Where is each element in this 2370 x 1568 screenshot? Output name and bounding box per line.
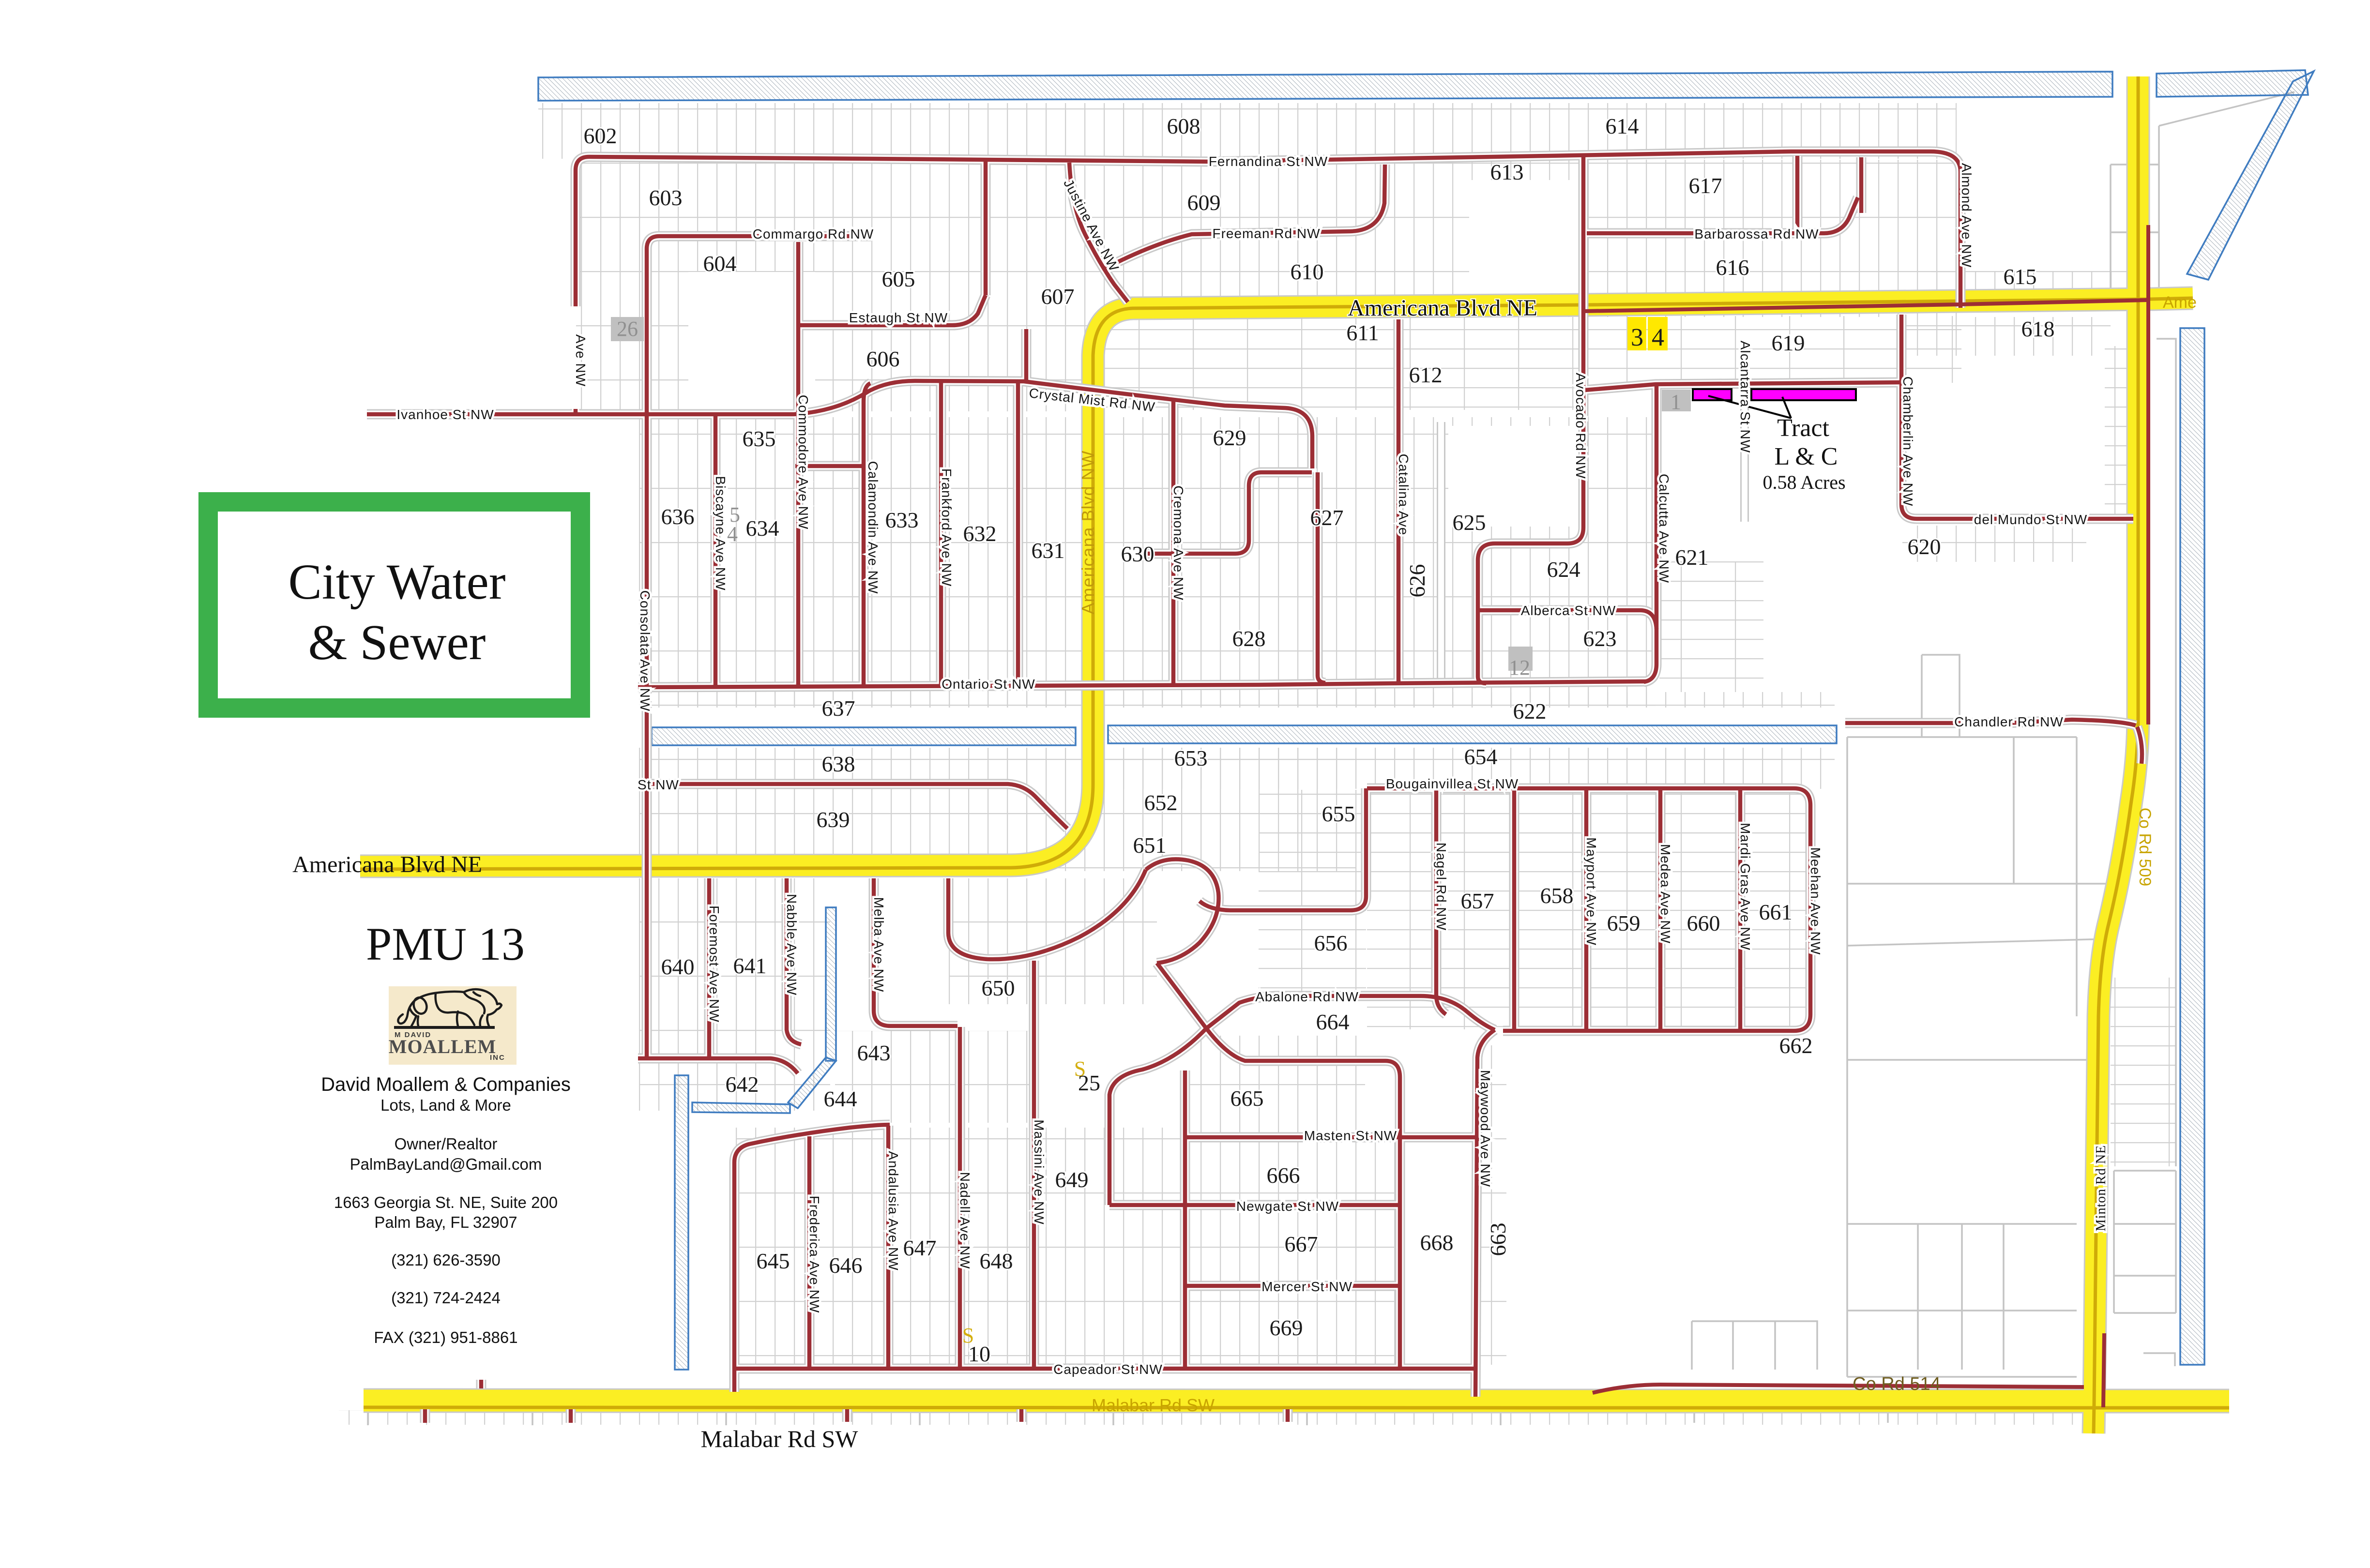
svg-text:655: 655 [1322, 801, 1355, 826]
svg-text:Ivanhoe St NW: Ivanhoe St NW [396, 407, 494, 422]
svg-text:605: 605 [882, 267, 915, 291]
svg-text:(321) 626-3590: (321) 626-3590 [391, 1251, 501, 1269]
svg-text:Frankford Ave NW: Frankford Ave NW [939, 468, 954, 587]
svg-text:617: 617 [1689, 173, 1722, 198]
svg-text:637: 637 [822, 696, 855, 721]
svg-text:626: 626 [1405, 564, 1429, 598]
svg-text:646: 646 [829, 1253, 863, 1278]
svg-text:(321) 724-2424: (321) 724-2424 [391, 1289, 501, 1307]
svg-text:S: S [1074, 1057, 1086, 1081]
svg-text:Americana Blvd NE: Americana Blvd NE [292, 852, 482, 877]
svg-text:Calcutta Ave NW: Calcutta Ave NW [1656, 474, 1671, 583]
svg-text:604: 604 [703, 251, 737, 276]
svg-text:12: 12 [1509, 656, 1530, 679]
svg-text:609: 609 [1187, 190, 1221, 215]
svg-text:644: 644 [824, 1086, 857, 1111]
svg-text:613: 613 [1490, 160, 1524, 184]
svg-text:David Moallem & Companies: David Moallem & Companies [321, 1074, 571, 1095]
svg-text:620: 620 [1908, 534, 1941, 559]
svg-text:665: 665 [1231, 1086, 1264, 1111]
svg-text:1: 1 [1671, 390, 1681, 414]
svg-text:INC: INC [490, 1054, 505, 1062]
svg-text:FAX (321) 951-8861: FAX (321) 951-8861 [374, 1328, 517, 1346]
svg-text:Nabble Ave NW: Nabble Ave NW [784, 894, 799, 995]
svg-text:PMU 13: PMU 13 [366, 918, 525, 970]
svg-text:650: 650 [982, 976, 1015, 1000]
svg-text:Abalone Rd NW: Abalone Rd NW [1255, 989, 1359, 1004]
svg-text:612: 612 [1409, 362, 1443, 387]
svg-text:Almond Ave NW: Almond Ave NW [1959, 163, 1974, 268]
svg-text:Biscayne Ave NW: Biscayne Ave NW [713, 476, 728, 590]
svg-text:640: 640 [661, 954, 695, 979]
svg-text:641: 641 [733, 953, 767, 978]
svg-text:4: 4 [727, 522, 738, 546]
svg-text:657: 657 [1461, 889, 1494, 913]
svg-text:630: 630 [1121, 542, 1155, 566]
svg-text:654: 654 [1464, 744, 1498, 769]
svg-text:Alberca St NW: Alberca St NW [1521, 603, 1616, 618]
svg-text:638: 638 [822, 752, 855, 776]
svg-text:643: 643 [857, 1040, 891, 1065]
svg-text:Americana Blvd NW: Americana Blvd NW [1078, 450, 1098, 614]
svg-text:Palm Bay, FL 32907: Palm Bay, FL 32907 [374, 1213, 517, 1231]
svg-text:Meehan Ave NW: Meehan Ave NW [1808, 847, 1823, 955]
svg-text:Andalusia Ave NW: Andalusia Ave NW [886, 1151, 901, 1270]
svg-text:Medea Ave NW: Medea Ave NW [1658, 844, 1673, 944]
svg-text:Ame: Ame [2163, 293, 2197, 312]
svg-text:Tract: Tract [1777, 414, 1829, 442]
svg-text:Frederica Ave NW: Frederica Ave NW [807, 1196, 822, 1313]
svg-text:Commargo Rd NW: Commargo Rd NW [753, 226, 874, 241]
svg-text:659: 659 [1607, 911, 1641, 935]
svg-text:628: 628 [1232, 626, 1266, 651]
svg-text:Malabar Rd SW: Malabar Rd SW [701, 1425, 859, 1452]
svg-text:666: 666 [1267, 1163, 1300, 1188]
svg-text:Nagel Rd NW: Nagel Rd NW [1434, 843, 1449, 931]
svg-text:645: 645 [757, 1249, 790, 1273]
svg-text:Estaugh St NW: Estaugh St NW [849, 310, 948, 325]
svg-text:625: 625 [1453, 510, 1486, 535]
svg-text:Melba Ave NW: Melba Ave NW [871, 897, 886, 993]
svg-text:L & C: L & C [1775, 443, 1838, 470]
svg-text:St NW: St NW [638, 777, 679, 792]
svg-text:S: S [962, 1324, 974, 1347]
svg-text:Capeador St NW: Capeador St NW [1053, 1362, 1163, 1377]
svg-text:Owner/Realtor: Owner/Realtor [395, 1135, 498, 1153]
svg-text:611: 611 [1346, 320, 1379, 345]
svg-text:Ontario St NW: Ontario St NW [942, 677, 1035, 692]
svg-text:City Water: City Water [289, 554, 506, 610]
svg-text:Lots, Land & More: Lots, Land & More [380, 1096, 511, 1114]
svg-text:614: 614 [1606, 114, 1639, 138]
svg-text:Maywood Ave NW: Maywood Ave NW [1478, 1070, 1493, 1187]
svg-text:619: 619 [1772, 331, 1805, 355]
svg-text:4: 4 [1652, 324, 1664, 351]
svg-text:623: 623 [1583, 626, 1617, 651]
svg-text:602: 602 [584, 123, 617, 148]
svg-text:629: 629 [1213, 425, 1246, 450]
svg-text:3: 3 [1631, 324, 1643, 351]
svg-text:Calamondin Ave NW: Calamondin Ave NW [866, 461, 881, 594]
svg-text:Alcantarra St NW: Alcantarra St NW [1738, 341, 1753, 453]
svg-text:Cremona Ave NW: Cremona Ave NW [1171, 485, 1186, 601]
svg-text:Catalina Ave: Catalina Ave [1396, 454, 1411, 536]
svg-text:Minton Rd NE: Minton Rd NE [2094, 1145, 2109, 1231]
svg-text:Co Rd 509: Co Rd 509 [2136, 808, 2154, 887]
svg-text:660: 660 [1687, 911, 1720, 935]
svg-text:622: 622 [1513, 699, 1547, 724]
svg-text:Nadell Ave NW: Nadell Ave NW [957, 1172, 972, 1269]
svg-text:Co Rd 514: Co Rd 514 [1853, 1374, 1941, 1394]
svg-text:Malabar Rd SW: Malabar Rd SW [1092, 1395, 1215, 1415]
svg-text:621: 621 [1675, 545, 1709, 570]
svg-text:653: 653 [1174, 746, 1208, 770]
svg-text:656: 656 [1314, 931, 1348, 955]
svg-text:664: 664 [1316, 1010, 1350, 1034]
svg-text:Avocado Rd NW: Avocado Rd NW [1573, 373, 1588, 479]
svg-text:& Sewer: & Sewer [308, 615, 486, 670]
svg-text:MOALLEM: MOALLEM [389, 1036, 497, 1057]
svg-text:636: 636 [661, 504, 695, 529]
svg-text:Newgate St NW: Newgate St NW [1236, 1199, 1339, 1214]
svg-text:624: 624 [1547, 557, 1580, 582]
svg-text:652: 652 [1144, 790, 1178, 815]
svg-text:PalmBayLand@Gmail.com: PalmBayLand@Gmail.com [350, 1155, 542, 1173]
svg-text:635: 635 [743, 426, 776, 451]
svg-text:668: 668 [1420, 1230, 1454, 1255]
svg-text:Masten St NW: Masten St NW [1304, 1128, 1397, 1143]
svg-text:618: 618 [2021, 317, 2055, 341]
svg-text:651: 651 [1133, 833, 1167, 858]
svg-text:633: 633 [885, 508, 919, 532]
svg-text:610: 610 [1291, 259, 1324, 284]
svg-text:667: 667 [1285, 1232, 1318, 1256]
svg-text:Mayport Ave NW: Mayport Ave NW [1584, 837, 1599, 946]
svg-text:Chamberlin Ave NW: Chamberlin Ave NW [1900, 377, 1915, 507]
svg-text:Commodore Ave NW: Commodore Ave NW [796, 395, 811, 529]
svg-text:663: 663 [1486, 1223, 1510, 1256]
svg-text:662: 662 [1779, 1033, 1813, 1058]
svg-text:del Mundo St NW: del Mundo St NW [1974, 512, 2087, 527]
svg-text:658: 658 [1540, 883, 1574, 908]
svg-text:642: 642 [726, 1072, 759, 1097]
svg-text:634: 634 [746, 516, 779, 541]
svg-text:631: 631 [1032, 538, 1065, 563]
svg-text:Mardi Gras Ave NW: Mardi Gras Ave NW [1738, 823, 1753, 950]
svg-text:649: 649 [1055, 1167, 1089, 1192]
svg-text:669: 669 [1270, 1315, 1303, 1340]
svg-text:616: 616 [1716, 255, 1749, 280]
svg-text:Bougainvillea St NW: Bougainvillea St NW [1386, 776, 1519, 791]
svg-text:Fernandina St NW: Fernandina St NW [1209, 154, 1328, 169]
svg-text:Ave NW: Ave NW [573, 334, 588, 387]
svg-text:1663 Georgia St. NE, Suite 200: 1663 Georgia St. NE, Suite 200 [334, 1193, 558, 1211]
svg-text:Barbarossa Rd NW: Barbarossa Rd NW [1694, 226, 1819, 241]
svg-text:603: 603 [649, 185, 683, 210]
svg-text:648: 648 [980, 1249, 1013, 1273]
svg-text:647: 647 [903, 1236, 937, 1260]
svg-text:Consolata Ave NW: Consolata Ave NW [638, 590, 653, 712]
svg-text:0.58 Acres: 0.58 Acres [1762, 471, 1845, 493]
svg-text:Chandler Rd NW: Chandler Rd NW [1954, 714, 2064, 729]
svg-text:Freeman Rd NW: Freeman Rd NW [1212, 226, 1320, 241]
svg-text:26: 26 [617, 317, 638, 341]
svg-text:627: 627 [1310, 505, 1344, 530]
svg-text:639: 639 [817, 807, 850, 832]
svg-text:Foremost Ave NW: Foremost Ave NW [707, 905, 722, 1023]
svg-text:615: 615 [2004, 264, 2037, 289]
svg-text:608: 608 [1167, 114, 1200, 138]
svg-text:607: 607 [1041, 284, 1075, 309]
svg-text:632: 632 [963, 521, 997, 546]
svg-text:Americana Blvd NE: Americana Blvd NE [1348, 295, 1537, 321]
svg-text:Mercer St NW: Mercer St NW [1261, 1279, 1352, 1294]
svg-text:606: 606 [866, 347, 900, 371]
svg-text:661: 661 [1759, 900, 1793, 924]
svg-text:Massini Ave NW: Massini Ave NW [1032, 1119, 1047, 1224]
